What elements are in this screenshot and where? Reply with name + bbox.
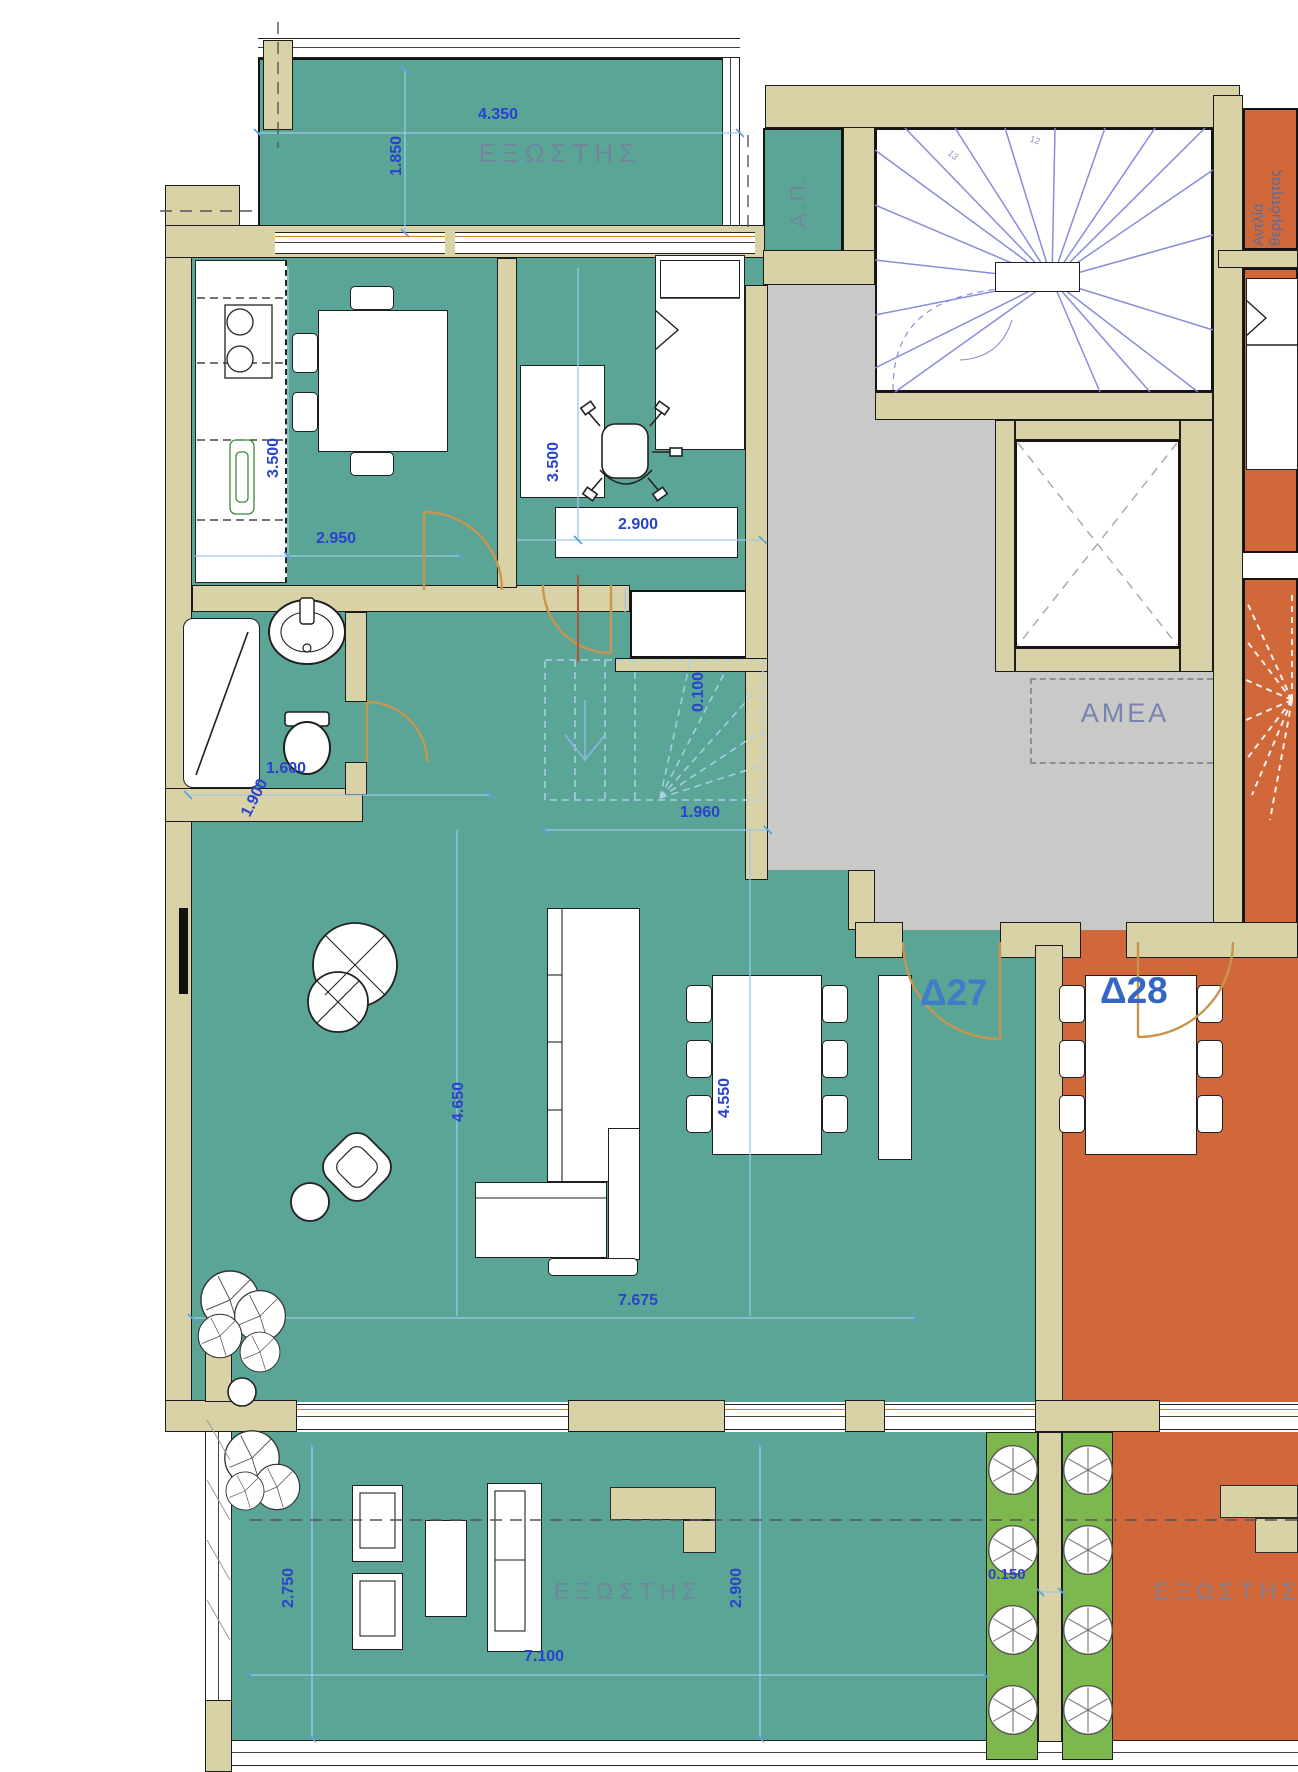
wall-core-top — [765, 85, 1240, 128]
heat-pump-label: Αντλία θερμότητας — [1250, 106, 1284, 246]
hall-closet — [630, 590, 763, 658]
wall-closet-bottom — [615, 658, 768, 672]
dim-balcony-bottom-depth-right: 2.900 — [728, 1568, 746, 1608]
floor-plan: ΕΞΩΣΤΗΣ Α.Π. Αντλία θερμότητας AMEA Δ27 … — [0, 0, 1298, 1772]
chair — [1059, 985, 1085, 1023]
planter-L-left-b — [683, 1520, 716, 1553]
outdoor-sofa — [487, 1483, 542, 1652]
dim-living-width: 7.675 — [618, 1292, 658, 1310]
wall-apt28-top-band — [1218, 250, 1298, 268]
dining-table-1 — [318, 310, 448, 452]
window-living-bottom-1 — [297, 1404, 568, 1430]
window-bedroom-top — [455, 232, 755, 254]
heat-pump-label-line1: Αντλία — [1250, 106, 1267, 246]
chair — [1197, 985, 1223, 1023]
chair — [292, 392, 318, 432]
window-balcony-top-right — [722, 58, 740, 233]
dim-bedroom-width: 2.900 — [618, 516, 658, 534]
wall-balcony-stub-upper — [205, 1332, 232, 1402]
console-cabinet — [878, 975, 912, 1160]
wall-elevator-bottom — [1015, 648, 1180, 672]
chair — [350, 286, 394, 310]
wall-elevator-right — [1180, 420, 1213, 672]
wall-kitchen-bath — [192, 585, 630, 612]
outdoor-armchair-2 — [352, 1573, 403, 1650]
dim-bathroom-width: 1.600 — [266, 760, 306, 778]
unit-label-d28: Δ28 — [1100, 970, 1168, 1012]
wall-entry-1 — [855, 922, 903, 958]
apt28-gap — [1243, 553, 1298, 578]
planter-strip-right — [1062, 1432, 1113, 1760]
wall-elevator-top — [1015, 420, 1180, 440]
wall-bottom-2 — [568, 1400, 725, 1432]
dim-living-depth-right: 4.550 — [716, 1078, 734, 1118]
chair — [686, 1095, 712, 1133]
dim-bedroom-depth: 3.500 — [545, 442, 563, 482]
chair — [822, 1040, 848, 1078]
planter-strip-left — [986, 1432, 1038, 1760]
wall-balcony-stub-lower — [205, 1700, 232, 1772]
dim-stair-offset: 0.100 — [690, 672, 708, 712]
window-living-bottom-2 — [725, 1404, 845, 1430]
chair — [686, 985, 712, 1023]
sofa-main-seat — [475, 1182, 607, 1258]
dim-kitchen-depth: 3.500 — [265, 438, 283, 478]
stairwell — [875, 128, 1213, 392]
window-balcony-top — [258, 38, 740, 58]
wall-bottom-4 — [1035, 1400, 1160, 1432]
wall-kitchen-bedroom — [497, 258, 517, 588]
chair — [822, 985, 848, 1023]
heat-pump-label-line2: θερμότητας — [1267, 106, 1284, 246]
chair — [1197, 1040, 1223, 1078]
window-apt28-bottom — [1160, 1404, 1298, 1430]
railing-balcony-bottom — [205, 1740, 1298, 1766]
outdoor-armchair-1 — [352, 1485, 403, 1562]
ap-room-label: Α.Π. — [786, 173, 812, 228]
dim-balcony-bottom-width: 7.100 — [524, 1648, 564, 1666]
tv-panel — [179, 908, 188, 994]
dim-planter-gap: 0.150 — [988, 1566, 1026, 1583]
dim-balcony-top-depth: 1.850 — [388, 136, 406, 176]
wall-left-lower — [165, 788, 192, 1402]
dim-kitchen-width: 2.950 — [316, 530, 356, 548]
chair — [1059, 1095, 1085, 1133]
wall-elevator-left — [995, 420, 1015, 672]
wall-entry-3 — [1126, 922, 1298, 958]
wall-landing-step — [848, 870, 875, 930]
dim-stair-width: 1.960 — [680, 804, 720, 822]
dim-living-depth-left: 4.650 — [450, 1082, 468, 1122]
chair — [686, 1040, 712, 1078]
wall-bath-right-lower — [345, 762, 367, 795]
bed-right — [1246, 278, 1298, 470]
balcony-top-label: ΕΞΩΣΤΗΣ — [450, 138, 670, 169]
wall-core-right — [1213, 95, 1243, 930]
balcony-bottom-left-label: ΕΞΩΣΤΗΣ — [538, 1578, 718, 1605]
elevator-shaft — [1015, 440, 1180, 648]
dim-balcony-bottom-depth-left: 2.750 — [280, 1568, 298, 1608]
pillow-bed-top — [660, 260, 740, 298]
wall-planter-divider — [1038, 1432, 1062, 1742]
stair-landing-platform — [995, 262, 1080, 292]
chair — [1197, 1095, 1223, 1133]
wall-bath-right-upper — [345, 612, 367, 702]
sofa-back-right — [608, 1128, 640, 1260]
unit-label-d27: Δ27 — [920, 972, 988, 1014]
dim-balcony-top-width: 4.350 — [478, 106, 518, 124]
chair — [1059, 1040, 1085, 1078]
wall-ap-bottom — [763, 250, 875, 285]
planter-L-right-b — [1255, 1518, 1298, 1553]
kitchen-counter — [195, 260, 287, 583]
sofa-bottom-cushion — [548, 1258, 638, 1276]
outdoor-coffee-table — [425, 1520, 467, 1617]
landing-left — [768, 255, 875, 870]
dining-table-2 — [712, 975, 822, 1155]
chair — [350, 452, 394, 476]
wall-bottom-3 — [845, 1400, 885, 1432]
shower — [183, 618, 260, 788]
chair — [292, 333, 318, 373]
wall-hall-landing — [745, 285, 768, 880]
railing-balcony-left — [205, 1402, 232, 1702]
wall-bottom-1 — [165, 1400, 297, 1432]
window-living-bottom-3 — [885, 1404, 1035, 1430]
wall-pillar-topleft — [263, 40, 293, 130]
planter-L-left-a — [610, 1487, 716, 1520]
chair — [822, 1095, 848, 1133]
window-kitchen-top — [275, 232, 445, 254]
amea-label: AMEA — [1040, 698, 1210, 729]
planter-L-right-a — [1220, 1485, 1298, 1518]
apt28-stair-room — [1243, 578, 1298, 930]
balcony-bottom-right-label: ΕΞΩΣΤΗΣ — [1148, 1578, 1298, 1605]
wall-under-stair — [875, 392, 1213, 420]
